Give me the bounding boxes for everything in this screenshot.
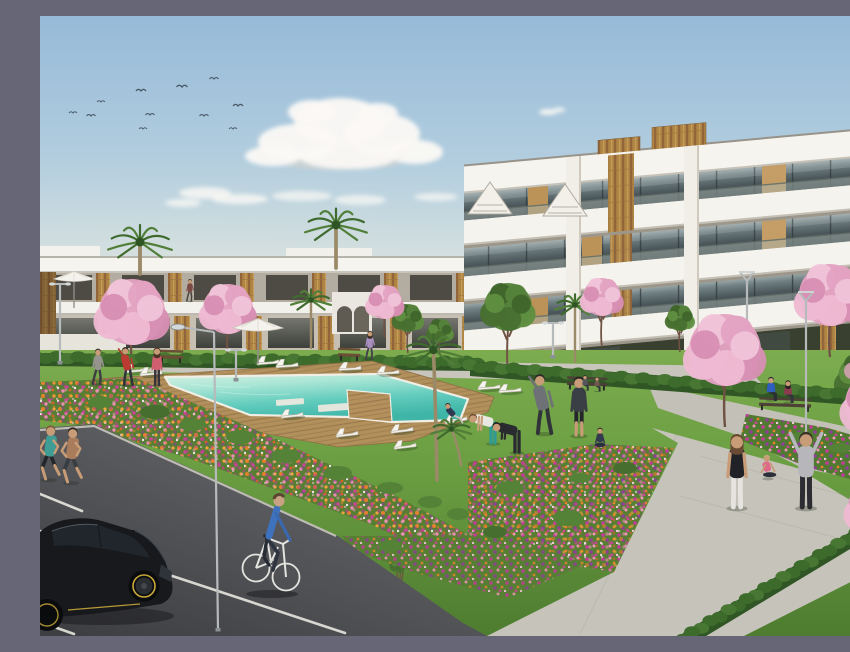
shrub [483, 526, 507, 538]
side-mirror [128, 530, 135, 534]
cloud-puff [358, 103, 398, 123]
arch-structure [332, 292, 372, 334]
cloud-puff [272, 191, 332, 201]
cloud-puff [387, 140, 443, 164]
property-render-image [40, 16, 850, 636]
shrub [569, 473, 591, 483]
cloud-puff [414, 193, 458, 201]
shrub [378, 540, 402, 552]
cloud-puff [300, 145, 396, 169]
shrub [553, 510, 583, 526]
shrub [226, 430, 254, 444]
render-scene [40, 16, 850, 636]
shrub [88, 396, 112, 408]
shrub [613, 462, 637, 474]
cloud-puff [165, 199, 201, 207]
deck-peninsula [347, 390, 392, 422]
shrub [140, 405, 170, 419]
shrub [447, 508, 469, 520]
shrub [829, 443, 850, 453]
shrub [271, 449, 301, 463]
wood-column [608, 153, 634, 232]
cloud-puff [334, 195, 386, 205]
shrub [324, 466, 352, 480]
shrub [496, 481, 524, 495]
shrub [179, 419, 205, 431]
cloud-puff [553, 108, 565, 113]
shrub [418, 496, 442, 508]
shrub [377, 482, 403, 494]
cloud-puff [245, 146, 301, 166]
cloud-puff [288, 100, 336, 124]
cloud-puff [212, 194, 268, 204]
